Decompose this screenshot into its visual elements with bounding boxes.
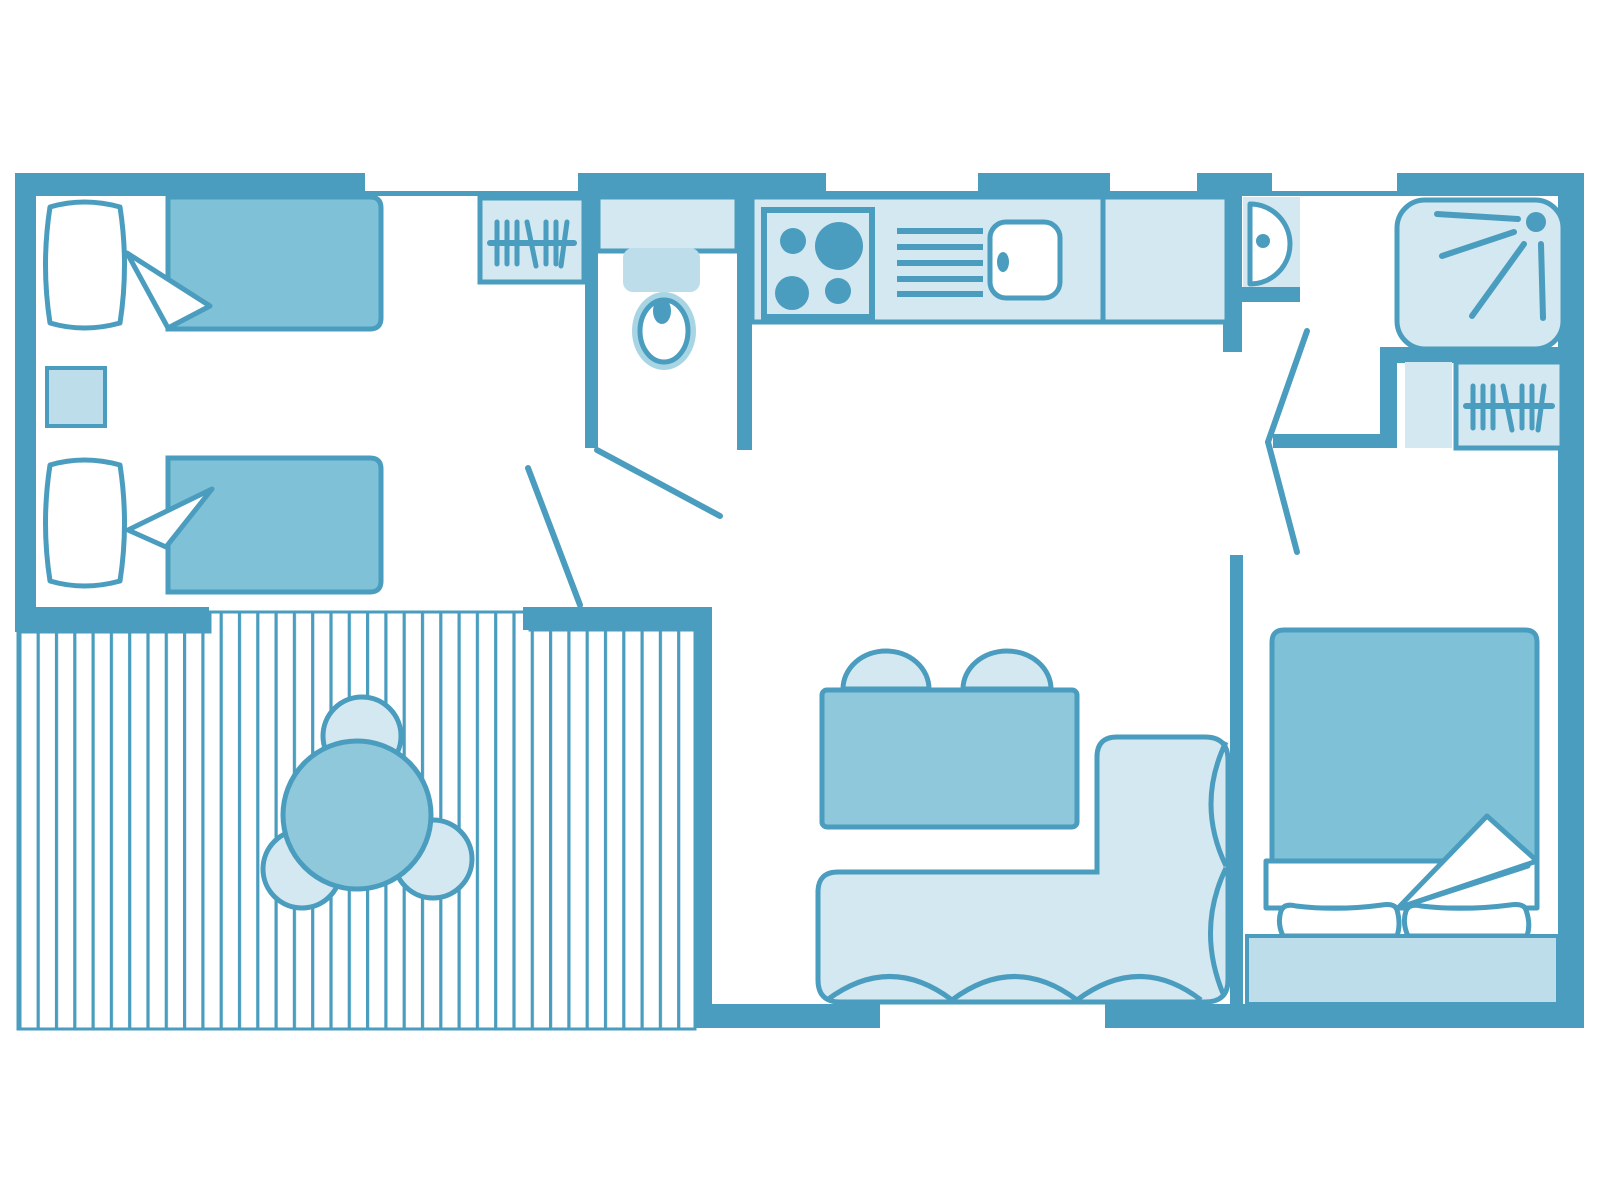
wall-top-5 <box>1397 173 1584 196</box>
drain-icon <box>1256 234 1270 248</box>
wc-room <box>598 197 737 370</box>
toilet-cistern <box>623 248 700 292</box>
terrace-deck <box>18 612 695 1029</box>
dining-chair-icon <box>963 651 1051 689</box>
wall-bedroom-door-stub <box>1273 434 1397 448</box>
door-swing-bedroom-right <box>1268 442 1297 552</box>
window-icon <box>365 191 578 196</box>
wall-top-2 <box>578 173 826 196</box>
terrace-round-table <box>283 741 431 889</box>
wall-top-3 <box>978 173 1110 196</box>
door-swing-wc <box>597 450 720 516</box>
window-icon <box>1272 191 1397 196</box>
wall-bottom-1 <box>695 1004 880 1028</box>
burner-icon <box>775 276 809 310</box>
shower-room <box>1242 197 1563 448</box>
pillow-icon <box>46 460 125 586</box>
floor-plan <box>0 0 1600 1200</box>
hallway <box>480 198 584 282</box>
double-bedroom <box>1247 630 1558 1004</box>
wall-top-1 <box>15 173 365 196</box>
door-swing-bedroom-left <box>528 468 580 605</box>
burner-icon <box>815 222 863 270</box>
twin-bedroom <box>46 197 382 592</box>
drain-icon <box>997 252 1009 272</box>
wall-deck-living <box>695 607 712 1028</box>
burner-icon <box>825 278 851 304</box>
single-bed-blanket <box>168 458 381 592</box>
headboard-bench <box>1247 936 1558 1004</box>
kitchen <box>752 197 1227 322</box>
wall-top-4 <box>1197 173 1272 196</box>
nightstand <box>47 368 105 426</box>
wall-bottom-2 <box>1105 1004 1584 1028</box>
dining-table <box>822 690 1077 827</box>
floor-plan-canvas <box>0 0 1600 1200</box>
wall-bedroom-deck-1 <box>15 607 209 632</box>
living-room <box>818 651 1228 1002</box>
wall-left <box>15 173 36 632</box>
vanity-shelf <box>598 197 737 251</box>
pillow-icon <box>1279 905 1399 936</box>
wall-living-bedroom <box>1230 555 1243 1004</box>
shelf-unit <box>1405 362 1452 448</box>
pillow-icon <box>46 202 125 328</box>
door-swing-bedroom-right <box>1268 331 1307 442</box>
wall-shower-left <box>1380 347 1397 448</box>
washbasin-ledge <box>1242 287 1300 302</box>
dining-chair-icon <box>843 651 929 689</box>
toilet-flush-icon <box>653 298 671 324</box>
doors <box>528 331 1307 605</box>
wall-bedroom-deck-2 <box>523 607 712 630</box>
pillow-icon <box>1404 905 1528 936</box>
burner-icon <box>780 228 806 254</box>
